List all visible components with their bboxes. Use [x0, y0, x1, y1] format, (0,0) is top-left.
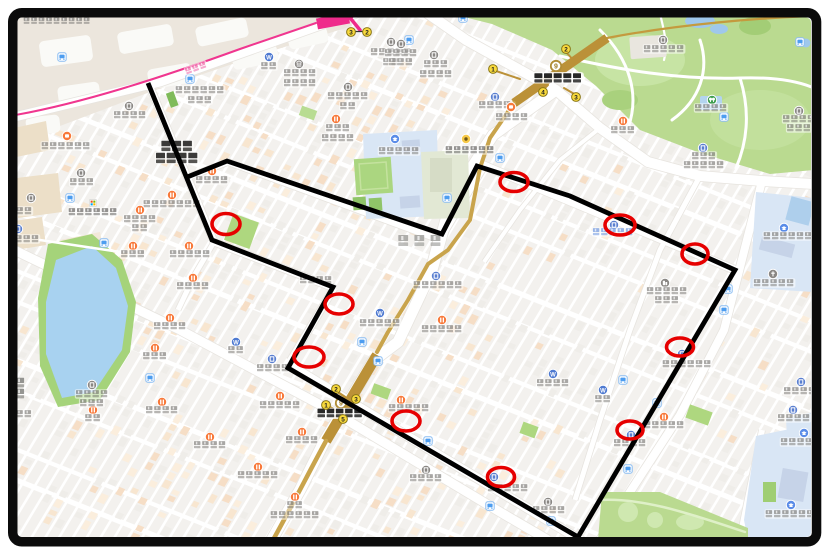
svg-text:9: 9 [554, 64, 558, 71]
svg-text:3: 3 [574, 94, 578, 101]
svg-text:4: 4 [541, 89, 545, 96]
svg-text:2: 2 [564, 46, 568, 53]
svg-text:2: 2 [365, 29, 369, 36]
svg-text:W: W [266, 55, 272, 61]
svg-text:3: 3 [354, 396, 358, 403]
svg-text:W: W [550, 372, 556, 378]
svg-text:W: W [600, 388, 606, 394]
svg-text:5: 5 [341, 416, 345, 423]
svg-text:1: 1 [324, 402, 328, 409]
svg-text:1: 1 [491, 66, 495, 73]
svg-text:3: 3 [349, 29, 353, 36]
svg-text:W: W [377, 311, 383, 317]
svg-text:2: 2 [334, 386, 338, 393]
